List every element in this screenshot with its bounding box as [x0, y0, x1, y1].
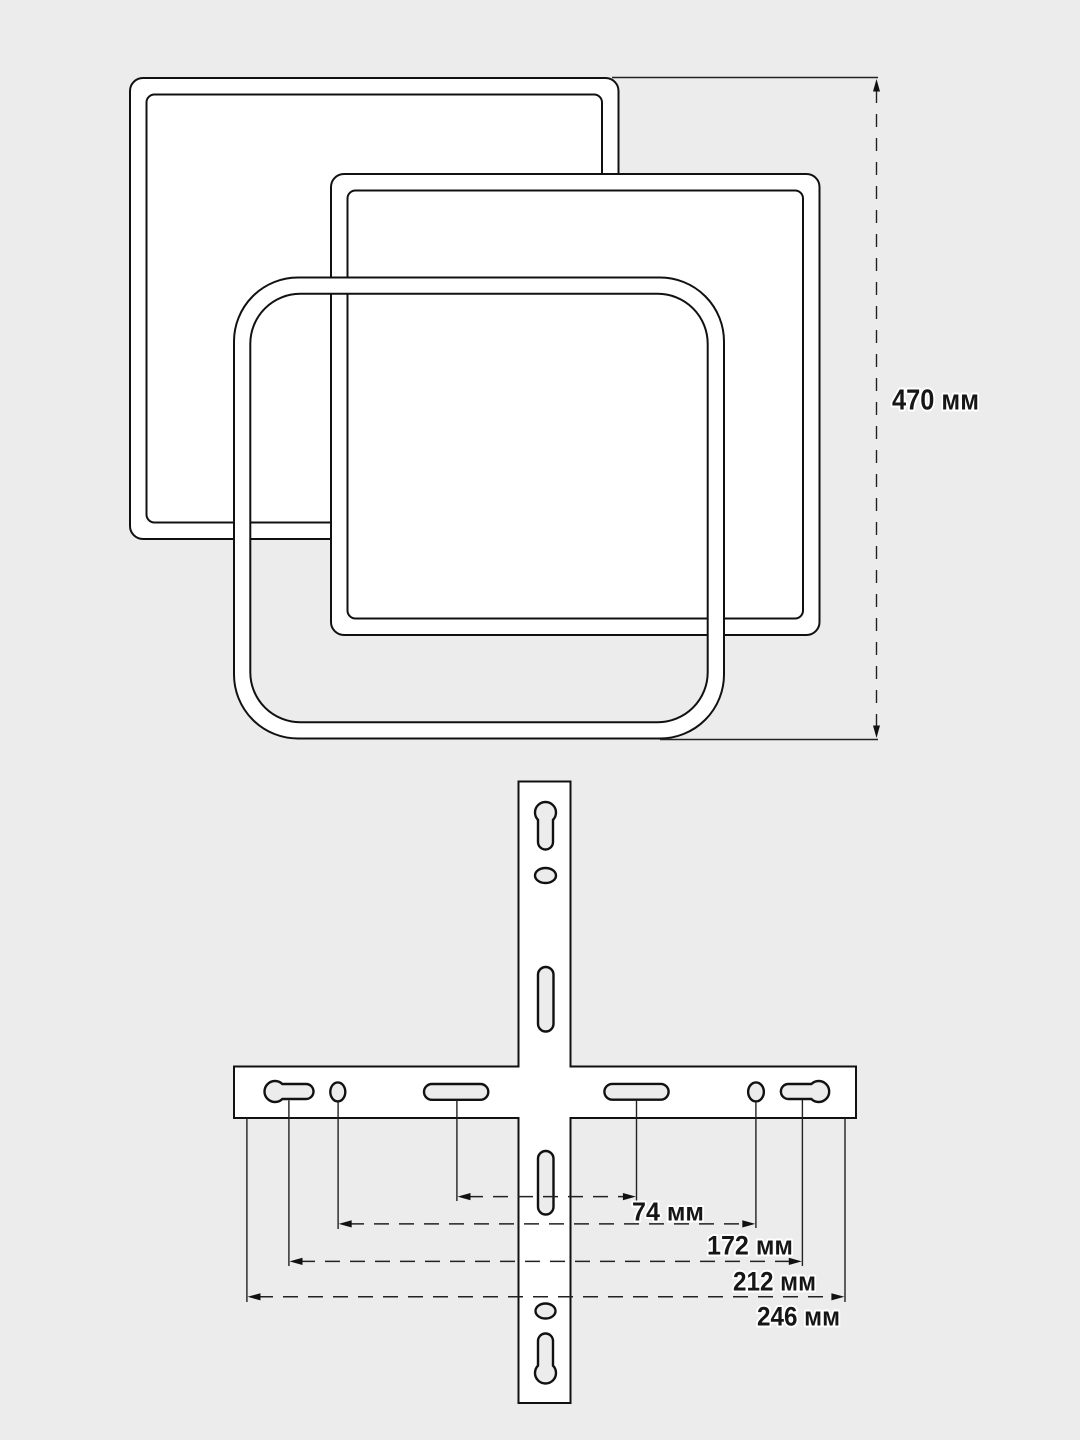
svg-text:246 мм: 246 мм [757, 1301, 840, 1331]
svg-text:74 мм: 74 мм [632, 1196, 704, 1226]
svg-text:212 мм: 212 мм [733, 1267, 816, 1297]
svg-text:172 мм: 172 мм [707, 1231, 793, 1261]
svg-text:470 мм: 470 мм [892, 385, 979, 417]
